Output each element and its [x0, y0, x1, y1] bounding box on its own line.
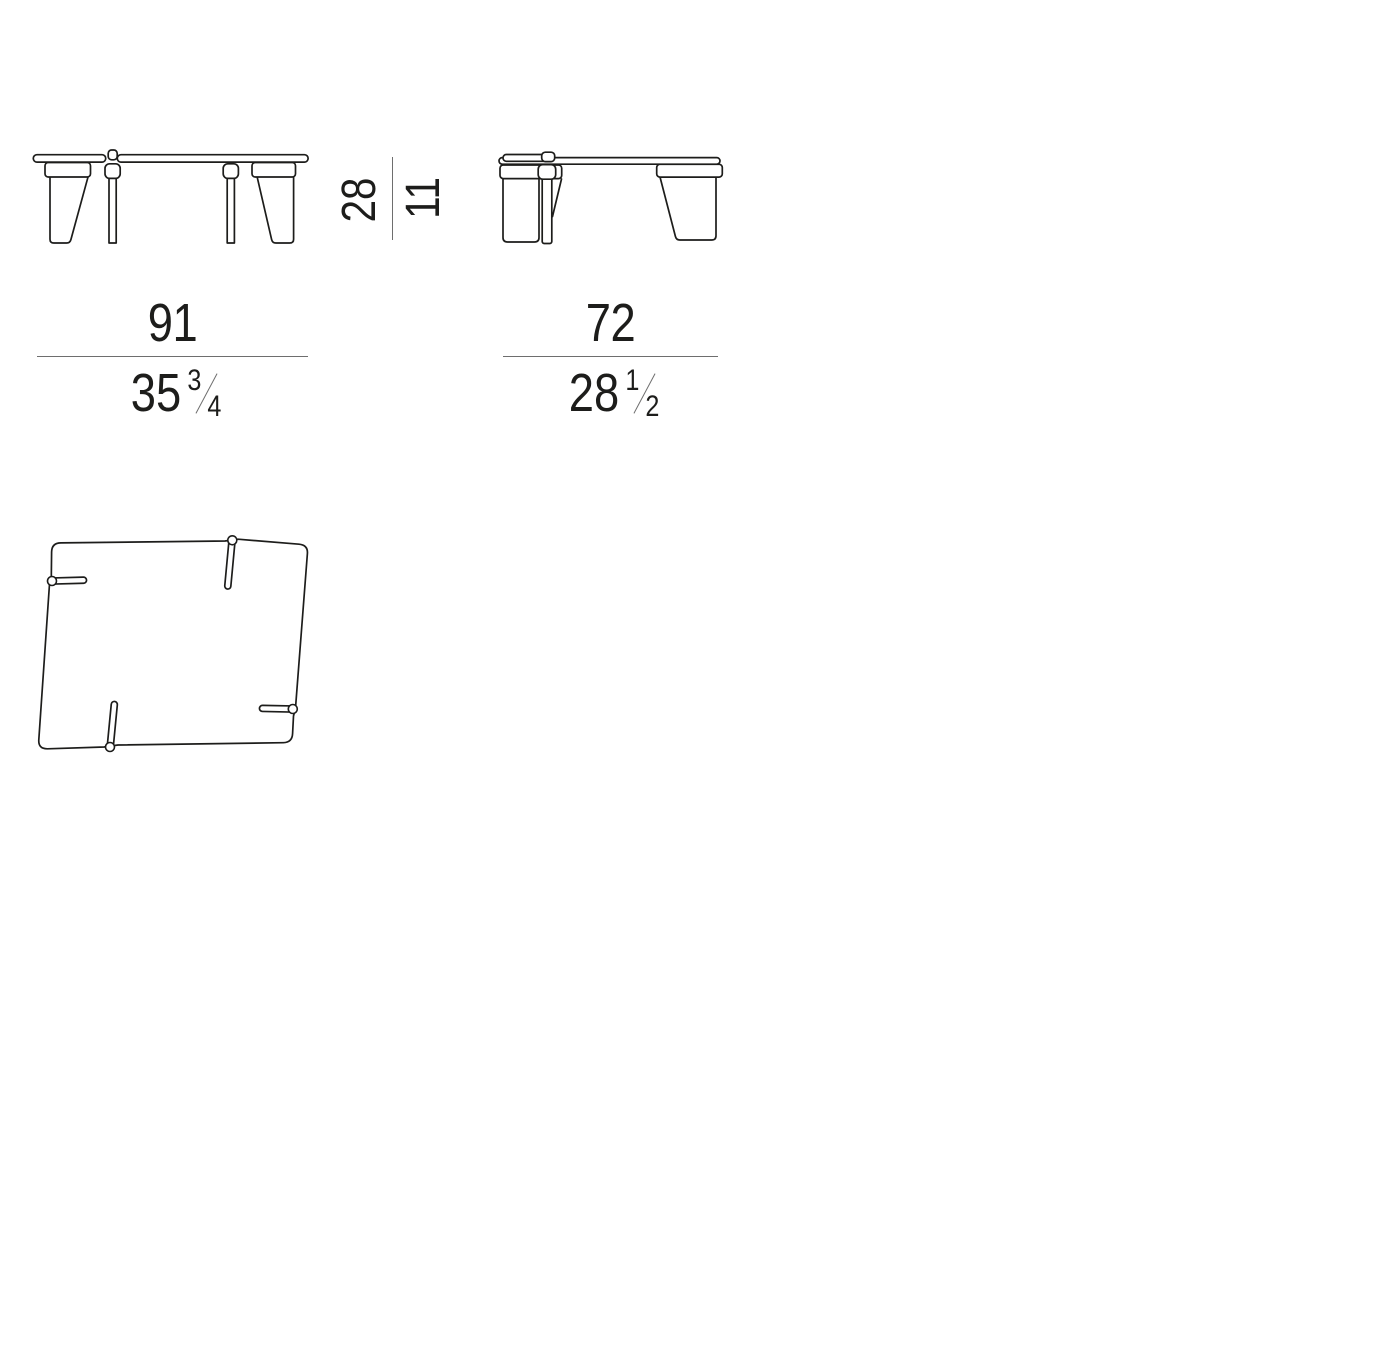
front-elevation-figure	[28, 145, 318, 255]
side-elevation-figure	[495, 145, 725, 255]
front-seam-peg	[108, 150, 117, 160]
plan-tabletop-outline	[39, 539, 308, 749]
front-panel-leg-2-clamp	[223, 164, 238, 179]
depth-inches-fraction: 12	[625, 369, 657, 419]
height-dimension-inches: 11	[397, 158, 451, 239]
front-panel-leg-2	[227, 174, 234, 243]
height-dimension-cm: 28	[333, 160, 387, 241]
plan-pin-top-left	[48, 577, 57, 586]
width-inches-fraction: 34	[187, 369, 219, 419]
width-fraction-denominator: 4	[207, 392, 221, 422]
side-hidden-leg-taper-line	[553, 179, 562, 217]
side-clamp-knob	[538, 165, 556, 180]
depth-fraction-numerator: 1	[625, 366, 639, 396]
plan-view-figure	[28, 520, 320, 770]
front-right-leg	[257, 176, 294, 243]
plan-slot-top-left	[48, 577, 84, 586]
side-elevation-drawing	[495, 145, 725, 250]
front-left-leg	[50, 176, 88, 243]
plan-view-drawing	[28, 520, 320, 765]
front-tabletop-right-section	[117, 155, 308, 162]
front-panel-leg-1-clamp	[105, 164, 120, 179]
side-seam-peg	[542, 152, 555, 161]
front-left-leg-collar	[45, 163, 91, 178]
width-dimension-cm: 91	[37, 300, 308, 346]
front-right-leg-collar	[252, 163, 296, 178]
depth-dimension-rule	[503, 356, 718, 357]
side-right-leg	[660, 177, 716, 240]
plan-pin-top-right	[228, 536, 237, 545]
width-fraction-numerator: 3	[187, 366, 201, 396]
depth-dimension-inches: 2812	[503, 369, 718, 419]
front-panel-leg-1	[109, 174, 116, 243]
depth-dimension-cm: 72	[503, 300, 718, 346]
technical-drawing-page: { "colors": { "line": "#1d1d1b", "dim": …	[0, 0, 1400, 1347]
width-dimension-inches: 3534	[37, 369, 308, 419]
width-dimension-cm-value: 91	[148, 300, 198, 346]
front-tabletop-left-section	[33, 155, 105, 162]
plan-pin-bottom-right	[288, 705, 297, 714]
width-inches-whole: 35	[131, 369, 181, 417]
front-elevation-drawing	[28, 145, 318, 250]
depth-fraction-denominator: 2	[645, 392, 659, 422]
plan-pin-bottom-left	[106, 743, 115, 752]
plan-slot-bottom-right	[263, 705, 298, 714]
height-dimension-divider-line	[392, 157, 393, 240]
side-left-leg	[503, 178, 539, 242]
depth-inches-whole: 28	[569, 369, 619, 417]
side-panel-leg-edge	[542, 178, 552, 244]
side-right-leg-collar	[657, 164, 723, 177]
width-dimension-rule	[37, 356, 308, 357]
depth-dimension-cm-value: 72	[586, 300, 636, 346]
